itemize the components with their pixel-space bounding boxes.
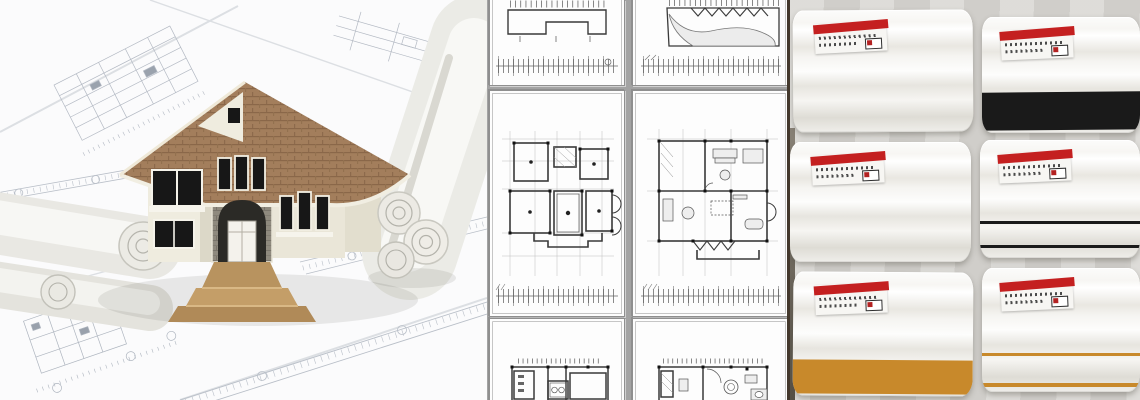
bay-sill-band [276, 232, 333, 237]
molding-sample-r1c2 [982, 17, 1140, 133]
product-label [999, 150, 1072, 183]
product-label [1000, 278, 1073, 311]
terrace-plan-drawing [633, 0, 788, 85]
product-label [811, 152, 884, 185]
label-fine-print [819, 304, 857, 308]
zigzag-edge [693, 241, 735, 250]
molding-sample-r1c1 [793, 9, 974, 132]
kitchen-plan-drawing [490, 319, 624, 400]
floorplan-sheet-r1c1 [489, 0, 625, 86]
dimension-tick-strip [641, 284, 781, 296]
molding-sample-r2c1 [790, 142, 971, 262]
blueprint-dimension-band-left [0, 168, 139, 200]
furniture [663, 149, 763, 229]
bay-arc [767, 203, 776, 221]
molding-sample-r3c2 [982, 268, 1140, 392]
furnished-plan-drawing [633, 91, 788, 316]
dimension-tick-strip [496, 59, 618, 66]
small-fixtures [679, 375, 767, 400]
label-logo-mark [864, 38, 882, 50]
ceiling-plan-drawing [490, 91, 624, 316]
attic-window [228, 108, 240, 123]
label-red-band [999, 26, 1074, 41]
molding-sample-r2c2 [980, 140, 1140, 258]
small-ticks [520, 36, 590, 42]
molding-sample-r3c1 [793, 271, 974, 396]
floorplan-sheet-r2c1 [489, 90, 625, 317]
round-fixture [724, 380, 738, 394]
zigzag-edge [691, 8, 768, 16]
balcony-railing [149, 206, 205, 212]
black-stripe [982, 91, 1140, 130]
label-red-band [812, 19, 887, 34]
plan-walls [510, 143, 612, 247]
dimension-grid [502, 131, 614, 276]
label-fine-print [819, 42, 857, 47]
ceiling-light-dots [528, 160, 601, 215]
stove-burner [559, 387, 565, 393]
label-logo-mark [862, 170, 879, 182]
product-label [814, 20, 887, 54]
stove-inner [550, 383, 566, 397]
label-logo-mark [1051, 45, 1068, 57]
product-label [1000, 27, 1073, 60]
dimension-tick-strip [641, 55, 781, 66]
house-blueprint-scene [0, 0, 487, 400]
banner-collage [0, 0, 1140, 400]
floorplan-sheet-r3c1 [489, 318, 625, 400]
bay-windows [280, 192, 329, 230]
label-fine-print [1006, 49, 1044, 54]
label-red-band [999, 277, 1074, 292]
label-fine-print [1004, 172, 1042, 177]
floorplan-sheet-r2c2 [632, 90, 789, 317]
roof-outline [508, 10, 606, 34]
hatch-strip [661, 373, 673, 393]
small-fixtures [518, 375, 524, 392]
label-logo-mark [1051, 296, 1068, 308]
stove-burner [552, 387, 558, 393]
round-fixture-inner [728, 384, 735, 391]
label-fine-print [1006, 300, 1044, 305]
label-fine-print [816, 174, 854, 179]
curved-pool-shape [669, 14, 775, 46]
gold-stripe-thin [982, 353, 1140, 356]
gold-stripe [793, 359, 973, 394]
black-stripe-thin [980, 245, 1140, 248]
label-red-band [813, 281, 888, 295]
panel-house-blueprints [0, 0, 487, 400]
product-label [814, 282, 887, 315]
floorplan-sheet-r1c2 [632, 0, 789, 86]
gold-stripe-thin [982, 383, 1140, 387]
panel-molding-samples [790, 0, 1140, 400]
hatch-room [554, 147, 576, 167]
hatch-entry [661, 143, 673, 177]
bay-arcs [612, 195, 621, 235]
floorplan-sheet-r3c2 [632, 318, 789, 400]
label-red-band [810, 151, 885, 166]
label-logo-mark [865, 300, 882, 312]
black-stripe-thin [980, 221, 1140, 224]
label-logo-mark [1049, 168, 1066, 180]
plan-walls [512, 367, 608, 400]
label-red-band [997, 149, 1072, 164]
tower-windows [218, 156, 265, 190]
roof-plan-drawing [490, 0, 624, 85]
dimension-tick-strip [496, 284, 618, 296]
rolled-blueprint-left [0, 216, 167, 270]
furnished-plan-drawing-partial [633, 319, 788, 400]
door-swing-arc [707, 369, 721, 383]
panel-floorplan-sheets [487, 0, 790, 400]
